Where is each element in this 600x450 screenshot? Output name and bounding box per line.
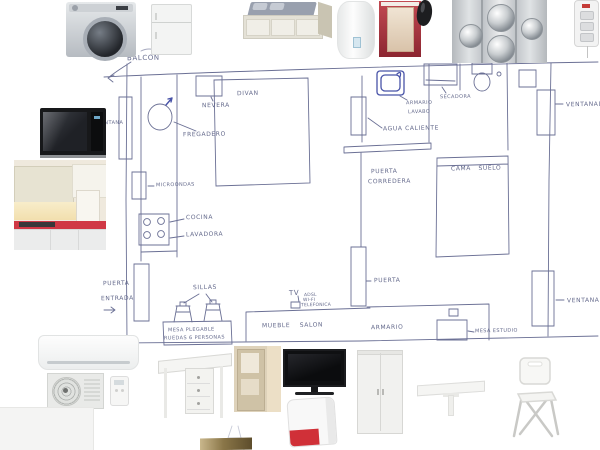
- label-lavadora: LAVADORA: [186, 231, 223, 239]
- label-fregadero: FREGADERO: [183, 131, 226, 139]
- daybed-drawer: [296, 19, 320, 36]
- shower-jet: [521, 18, 543, 40]
- tv-screen: [283, 349, 346, 387]
- label-puerta-entrada-2: ENTRADA: [101, 295, 134, 303]
- puerta-corredera-shape: [344, 143, 431, 153]
- water-heater-image: [337, 1, 375, 59]
- label-cocina: COCINA: [186, 214, 213, 221]
- kitchen-photo: [14, 160, 106, 250]
- label-divan: DIVAN: [237, 90, 259, 97]
- label-mesa-plegable-2: RUEDAS 6 PERSONAS: [164, 334, 225, 341]
- upper-cabinets: [14, 166, 74, 204]
- wifi-router-image: [286, 396, 337, 447]
- red-bathroom-vanity-image: [379, 1, 421, 57]
- wall-folding-table-image: [417, 378, 483, 416]
- power-outlet: [580, 22, 594, 31]
- label-tv-telefonica: TELEFONICA: [301, 303, 331, 309]
- ac-remote-image: [110, 376, 129, 406]
- balcon-arrow: [108, 62, 131, 82]
- label-tv: TV: [289, 289, 299, 297]
- moodboard-canvas: BALCON NEVERA FREGADERO VENTANA MICROOND…: [0, 0, 600, 450]
- table-drawer: [187, 384, 210, 397]
- washer-door: [83, 17, 127, 61]
- label-mueble-salon: MUEBLE SALON: [262, 321, 323, 329]
- label-armario-lavabo-2: LAVABO: [408, 109, 430, 115]
- daybed-drawer: [246, 19, 270, 36]
- mesa-estudio-shape: [437, 309, 474, 340]
- closet-photo: [234, 346, 281, 412]
- ac-outdoor-unit-image: [47, 373, 104, 409]
- table-drawer: [187, 397, 210, 410]
- label-mesa-estudio: MESA ESTUDIO: [475, 328, 518, 335]
- daybed-image: [243, 1, 332, 38]
- label-sillas: SILLAS: [193, 284, 217, 291]
- label-armario: ARMARIO: [371, 324, 404, 332]
- label-puerta-corredera-2: CORREDERA: [368, 178, 411, 186]
- gateleg-table-image: [158, 352, 232, 422]
- power-strip-switch: [582, 4, 590, 8]
- ac-indoor-unit-image: [38, 335, 139, 370]
- label-microondas: MICROONDAS: [156, 182, 195, 189]
- table-drawer: [187, 371, 210, 384]
- refrigerator-image: [151, 4, 192, 55]
- label-secadora: SECADORA: [440, 94, 471, 101]
- shower-jet: [487, 4, 515, 32]
- label-mesa-plegable-1: MESA PLEGABLE: [168, 327, 215, 334]
- wall-right: [548, 63, 551, 336]
- puerta-dormitorio-shape: [351, 247, 371, 306]
- under-cabinet-light: [14, 202, 76, 220]
- label-ventanal-bottom: VENTANAL: [567, 297, 600, 305]
- label-cama-suelo: CAMA SUELO: [451, 165, 501, 173]
- power-outlet: [580, 33, 594, 42]
- agua-caliente-shape: [351, 97, 382, 135]
- shower-jet: [459, 24, 483, 48]
- router-red-face: [290, 429, 320, 447]
- microwave-display: [94, 116, 100, 119]
- cocina-shape: [139, 214, 169, 245]
- shower-panel-image: [452, 0, 547, 63]
- wardrobe-handle: [382, 389, 384, 395]
- washer-display: [116, 6, 128, 10]
- shower-jet: [487, 35, 515, 63]
- ventana-left-shape: [119, 97, 132, 159]
- fregadero-shape: [148, 104, 172, 130]
- label-puerta-dormitorio: PUERTA: [374, 277, 401, 284]
- washing-machine-image: [66, 2, 136, 57]
- folding-chair-image: [502, 356, 562, 442]
- puerta-entrada-shape: [134, 264, 149, 321]
- label-ventanal-top: VENTANAL: [566, 101, 600, 109]
- wall-top: [104, 62, 598, 77]
- label-puerta-corredera-1: PUERTA: [371, 168, 398, 175]
- power-strip-image: [574, 0, 599, 47]
- cropped-image-corner: [0, 407, 94, 450]
- wardrobe-handle: [377, 389, 379, 395]
- armario-lavabo-shape: [377, 71, 404, 95]
- heater-display: [353, 37, 361, 48]
- cropped-image-edge: [200, 438, 252, 450]
- hob: [19, 222, 55, 227]
- microwave-image: [40, 108, 106, 158]
- flatscreen-tv-image: [283, 349, 346, 396]
- lower-cabinets: [14, 229, 106, 250]
- power-outlet: [580, 11, 594, 20]
- microondas-shape: [132, 172, 154, 199]
- label-armario-lavabo-1: ARMARIO: [406, 100, 432, 106]
- daybed-drawer: [271, 19, 295, 36]
- silla-shape: [174, 302, 192, 322]
- divan-shape: [214, 78, 310, 186]
- vanity-mirror: [387, 7, 414, 52]
- label-agua-caliente: AGUA CALIENTE: [383, 125, 439, 133]
- label-nevera: NEVERA: [202, 102, 230, 109]
- label-puerta-entrada-1: PUERTA: [103, 280, 130, 287]
- silla-shape: [204, 300, 222, 321]
- washer-dial: [72, 5, 78, 11]
- wardrobe-image: [357, 350, 403, 434]
